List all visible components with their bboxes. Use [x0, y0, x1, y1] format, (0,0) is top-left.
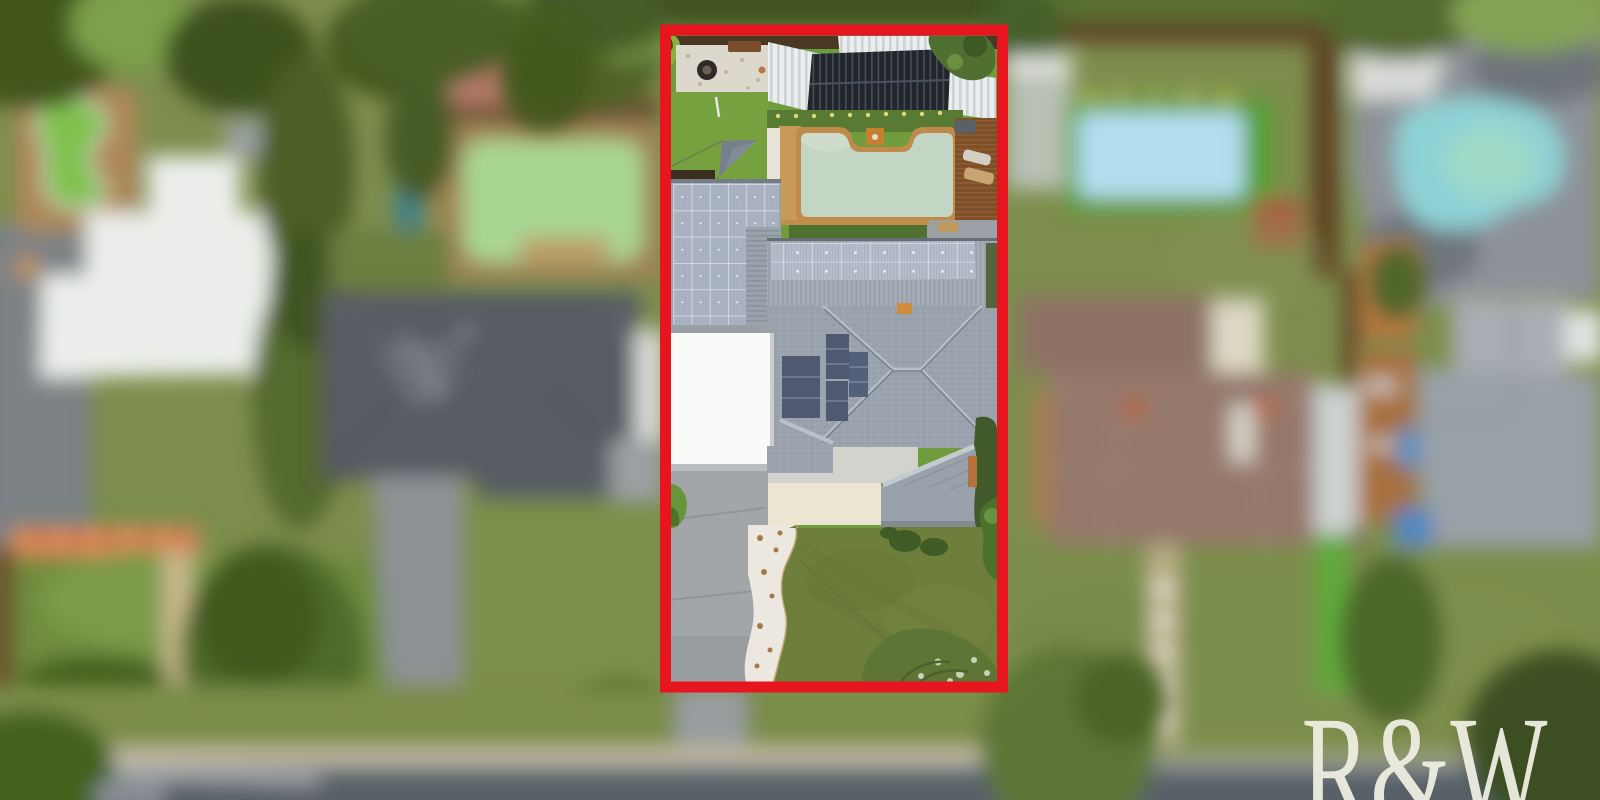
svg-text:R&W: R&W: [1302, 684, 1548, 800]
